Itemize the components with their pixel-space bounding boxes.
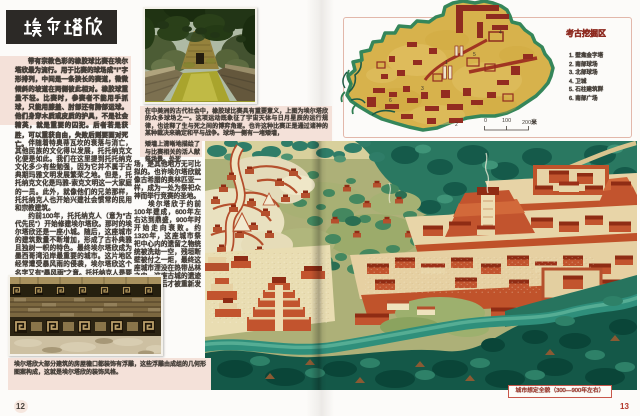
svg-text:1: 1 [445, 60, 448, 66]
svg-text:3: 3 [421, 86, 424, 92]
svg-text:2: 2 [455, 122, 458, 128]
svg-text:4: 4 [499, 30, 502, 36]
svg-text:5: 5 [473, 52, 476, 58]
svg-text:6: 6 [389, 98, 392, 104]
